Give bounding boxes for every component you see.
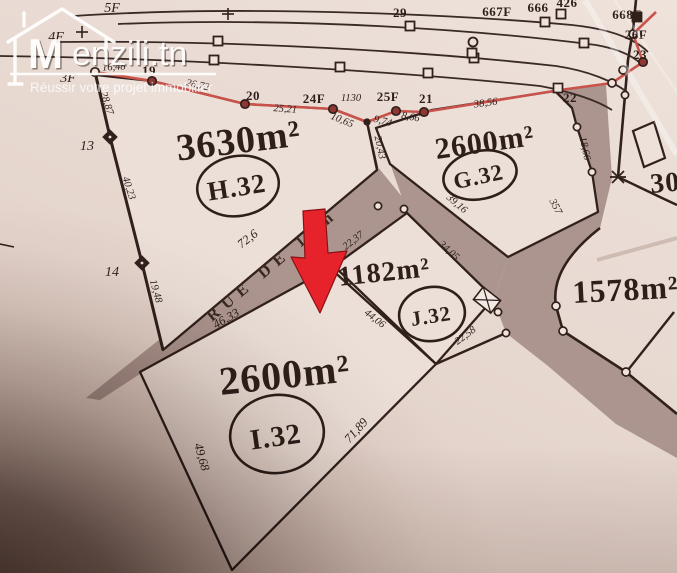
map-label-23: 23 — [633, 47, 647, 62]
map-label-667F: 667F — [482, 4, 511, 19]
plot-northeast-area-partial: 30 — [649, 166, 677, 199]
map-label-21: 21 — [419, 91, 433, 106]
map-label-22: 22 — [563, 90, 577, 105]
cadastral-map-photo: 3630m² H.32 2600m² G.32 1182m² J.32 2600… — [0, 0, 677, 573]
map-label-1130: 1130 — [341, 93, 362, 104]
map-label-13: 13 — [80, 139, 94, 154]
square-survey-markers — [210, 10, 642, 78]
map-label-4F: 4F — [48, 30, 64, 45]
map-label-3F: 3F — [59, 71, 76, 86]
map-label-19: 19 — [142, 63, 156, 78]
map-label-20: 20 — [246, 88, 260, 103]
map-label-666: 666 — [528, 0, 549, 15]
cadastral-map-svg: 3630m² H.32 2600m² G.32 1182m² J.32 2600… — [0, 0, 677, 573]
map-label-2521: 25,21 — [273, 103, 297, 116]
map-label-426: 426 — [557, 0, 578, 10]
map-label-29: 29 — [393, 5, 407, 20]
map-label-25F: 25F — [377, 89, 399, 104]
map-label-24F: 24F — [303, 91, 325, 106]
plot-east-area: 1578m² — [571, 268, 677, 310]
map-label-14: 14 — [105, 265, 119, 280]
map-label-5F: 5F — [104, 1, 120, 16]
map-label-1648: 16,48 — [102, 61, 127, 73]
circle-survey-marker — [469, 38, 478, 47]
